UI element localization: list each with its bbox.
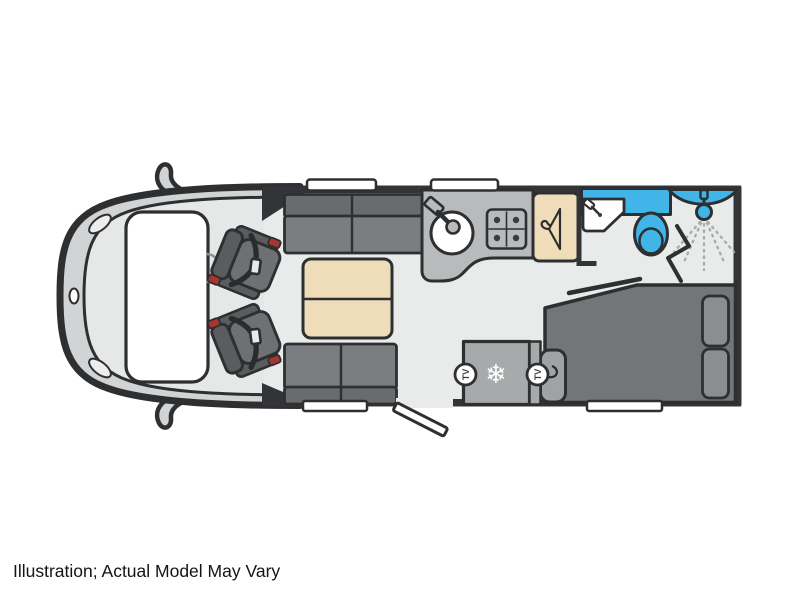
- windscreen: [126, 212, 208, 382]
- front-badge-icon: [70, 289, 79, 304]
- window-bedroom: [587, 401, 662, 411]
- galley-rear: ❄ TV TV: [455, 342, 548, 405]
- bathroom-wall-stub: [577, 261, 597, 266]
- snowflake-icon: ❄: [485, 360, 507, 390]
- skylight-mid: [431, 180, 498, 191]
- window-lounge: [303, 401, 367, 411]
- caption-text: Illustration; Actual Model May Vary: [13, 561, 280, 582]
- tv-point-front: TV: [455, 364, 476, 385]
- pillow: [703, 349, 729, 398]
- svg-text:TV: TV: [533, 369, 543, 381]
- floorplan-canvas: ❄ TV TV Illustration; Actual Model May V…: [0, 0, 800, 600]
- svg-text:TV: TV: [461, 369, 471, 381]
- wardrobe: [533, 193, 579, 261]
- seatbelt-buckle: [250, 259, 261, 275]
- sofa-front-seat: [285, 216, 426, 253]
- seatbelt-buckle: [250, 329, 261, 345]
- toilet-seat: [640, 229, 663, 254]
- skylight-front: [307, 180, 376, 191]
- sofa-front-backrest: [285, 195, 426, 218]
- tv-point-rear: TV: [527, 364, 548, 385]
- wardrobe-cabinet: [533, 193, 579, 261]
- pillow: [703, 296, 729, 346]
- motorhome-floorplan: ❄ TV TV: [0, 0, 800, 600]
- hob-icon: [487, 210, 526, 249]
